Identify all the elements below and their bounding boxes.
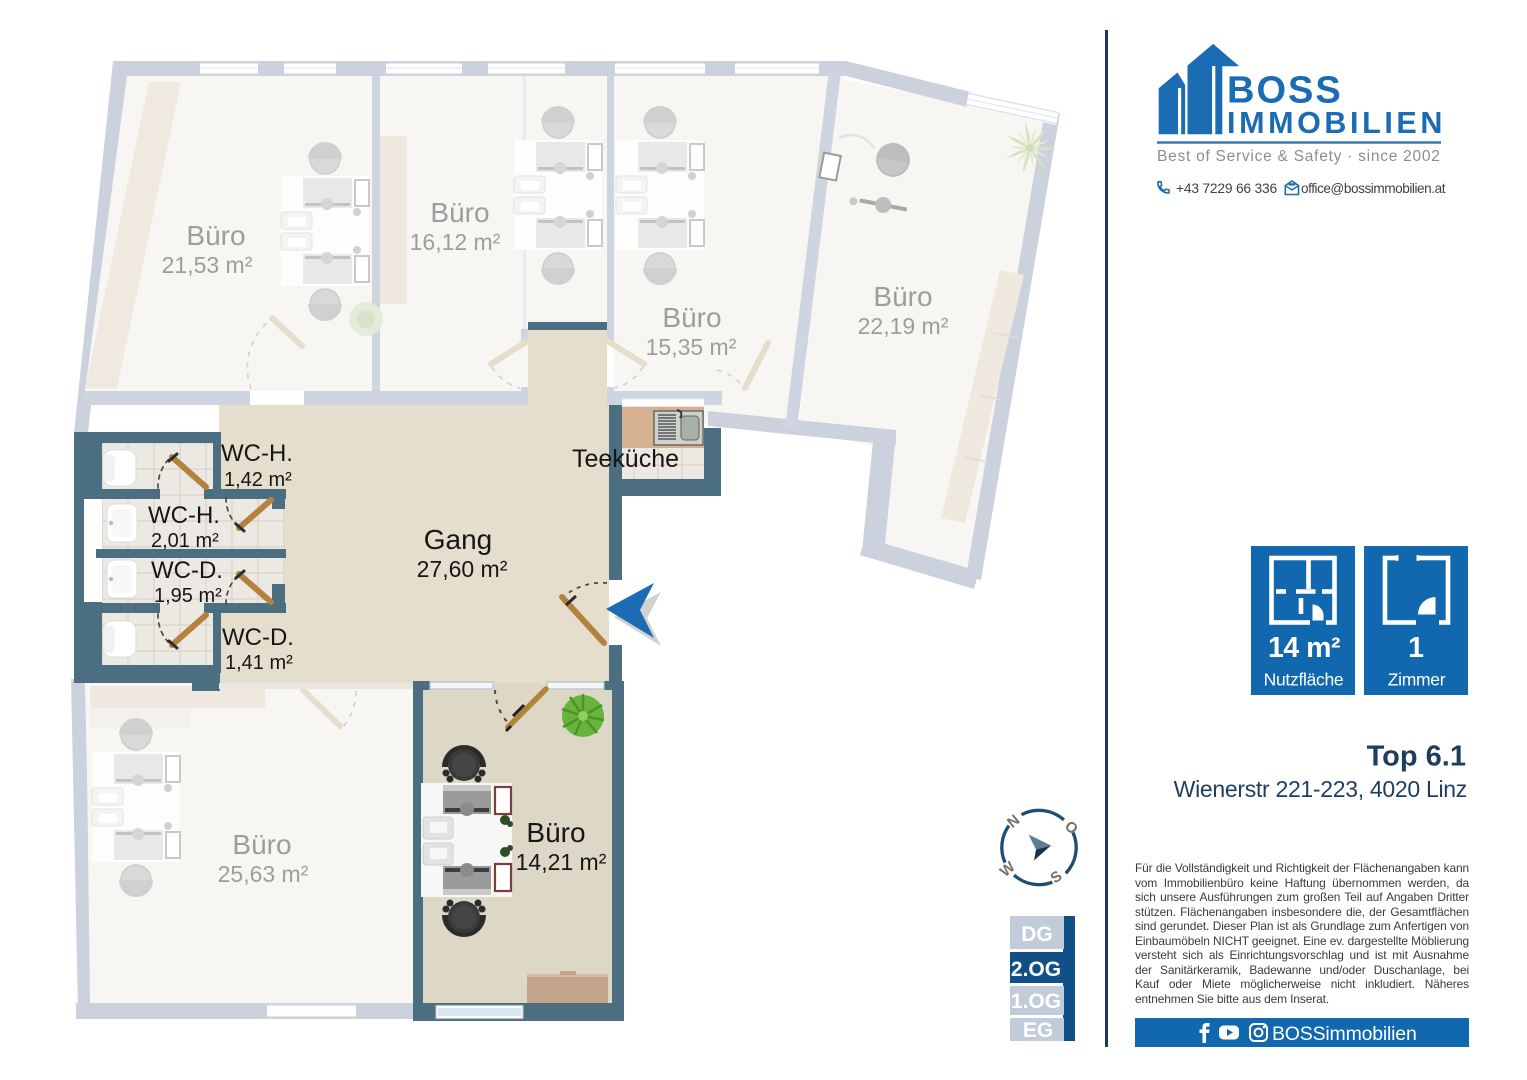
- svg-text:WC-H.: WC-H.: [221, 440, 293, 467]
- svg-text:WC-H.: WC-H.: [148, 502, 220, 529]
- svg-text:office@bossimmobilien.at: office@bossimmobilien.at: [1301, 181, 1446, 196]
- svg-text:Teeküche: Teeküche: [572, 445, 679, 473]
- svg-text:14 m²: 14 m²: [1268, 632, 1340, 664]
- svg-text:Wienerstr 221-223, 4020 Linz: Wienerstr 221-223, 4020 Linz: [1174, 776, 1467, 802]
- svg-text:27,60 m²: 27,60 m²: [417, 556, 508, 582]
- svg-text:IMMOBILIEN: IMMOBILIEN: [1227, 106, 1446, 140]
- svg-text:Büro: Büro: [430, 197, 489, 228]
- svg-text:16,12 m²: 16,12 m²: [410, 229, 501, 255]
- svg-text:+43 7229 66 336: +43 7229 66 336: [1176, 181, 1277, 196]
- svg-text:WC-D.: WC-D.: [222, 624, 294, 651]
- svg-text:21,53 m²: 21,53 m²: [162, 252, 253, 278]
- svg-text:1,41 m²: 1,41 m²: [225, 652, 293, 674]
- svg-text:Best of Service & Safety · sin: Best of Service & Safety · since 2002: [1157, 148, 1441, 165]
- svg-text:15,35 m²: 15,35 m²: [646, 334, 737, 360]
- svg-text:25,63 m²: 25,63 m²: [218, 861, 309, 887]
- svg-text:Büro: Büro: [873, 281, 932, 312]
- svg-text:2.OG: 2.OG: [1011, 958, 1061, 981]
- svg-text:EG: EG: [1023, 1019, 1053, 1042]
- svg-text:14,21 m²: 14,21 m²: [516, 849, 607, 875]
- svg-text:Büro: Büro: [186, 220, 245, 251]
- svg-text:Nutzfläche: Nutzfläche: [1264, 670, 1344, 690]
- svg-text:1.OG: 1.OG: [1011, 990, 1061, 1013]
- svg-text:22,19 m²: 22,19 m²: [858, 313, 949, 339]
- svg-text:Büro: Büro: [526, 817, 585, 848]
- svg-text:Gang: Gang: [424, 524, 493, 555]
- svg-text:O: O: [1061, 818, 1081, 839]
- svg-text:Büro: Büro: [232, 829, 291, 860]
- svg-text:2,01 m²: 2,01 m²: [151, 530, 219, 552]
- svg-text:Zimmer: Zimmer: [1388, 670, 1446, 690]
- svg-text:Büro: Büro: [662, 302, 721, 333]
- svg-text:Top 6.1: Top 6.1: [1367, 741, 1466, 773]
- svg-text:1,95 m²: 1,95 m²: [154, 585, 222, 607]
- svg-text:1,42 m²: 1,42 m²: [224, 469, 292, 491]
- svg-text:DG: DG: [1021, 923, 1053, 946]
- svg-text:WC-D.: WC-D.: [151, 557, 223, 584]
- svg-text:1: 1: [1408, 632, 1424, 664]
